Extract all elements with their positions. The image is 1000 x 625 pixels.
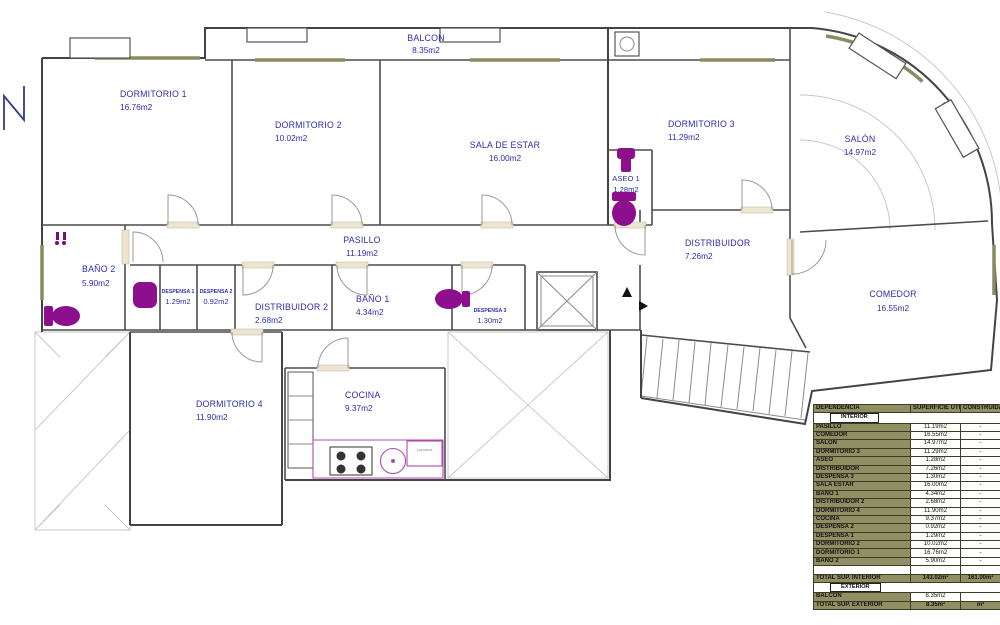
surface-table: DEPENDENCIA SUPERFICIE ÚTIL CONSTRUIDA I… [813,404,1000,610]
table-row: DISTRIBUIDOR 22.68m2- [814,499,1000,507]
table-cell-construida: - [961,440,1000,448]
label-distribuidor2: DISTRIBUIDOR 2 [255,302,328,312]
table-cell-construida: - [961,541,1000,549]
section-exterior-label: EXTERIOR [830,583,881,592]
svg-text:1.28m2: 1.28m2 [613,185,638,194]
table-row: DESPENSA 20.92m2- [814,524,1000,532]
bano1-toilet [435,289,463,309]
svg-text:14.97m2: 14.97m2 [844,147,877,157]
faucet-mark [56,232,59,240]
washing-machine [407,441,442,466]
table-cell-util: 10.02m2 [911,541,961,549]
label-dormitorio4: DORMITORIO 4 [196,399,263,409]
svg-text:2.68m2: 2.68m2 [255,315,283,325]
table-row: BAÑO 14.34m2- [814,490,1000,498]
exterior-rows: BALCON8.35m2 [814,593,1000,601]
table-cell-util: 2.68m2 [911,499,961,507]
bano2-basin [133,282,157,308]
table-row: BALCON8.35m2 [814,593,1000,601]
table-row: DISTRIBUIDOR7.26m2- [814,465,1000,473]
table-row: BAÑO 25.90m2- [814,557,1000,565]
table-row: DORMITORIO 210.02m2- [814,541,1000,549]
svg-text:11.29m2: 11.29m2 [668,132,700,142]
svg-text:0.92m2: 0.92m2 [203,297,228,306]
staircase [641,335,810,420]
elevator-shaft [537,272,597,330]
table-row: COMEDOR16.55m2- [814,431,1000,439]
table-cell-util: 1.30m2 [911,473,961,481]
table-cell-util: 11.90m2 [911,507,961,515]
stove [330,447,372,475]
label-dormitorio2: DORMITORIO 2 [275,120,342,130]
table-row: PASILLO11.19m2- [814,423,1000,431]
svg-text:1.30m2: 1.30m2 [477,316,502,325]
table-cell-util: 16.55m2 [911,431,961,439]
svg-text:7.26m2: 7.26m2 [685,251,713,261]
svg-text:16.55m2: 16.55m2 [877,303,910,313]
table-cell-name: DORMITORIO 2 [814,541,911,549]
arrow-right-icon [639,301,648,311]
table-cell-util: 9.37m2 [911,515,961,523]
table-cell-name: COCINA [814,515,911,523]
shower-unit [615,32,639,56]
table-cell-name: DORMITORIO 3 [814,448,911,456]
label-sala-de-estar: SALA DE ESTAR [470,140,540,150]
header-dependencia: DEPENDENCIA [814,405,911,413]
table-cell-name: COMEDOR [814,431,911,439]
north-mark [4,86,24,130]
label-comedor: COMEDOR [869,289,916,299]
table-cell-construida: - [961,431,1000,439]
table-cell-name: DESPENSA 1 [814,532,911,540]
table-cell-name: PASILLO [814,423,911,431]
table-row: DESPENSA 11.29m2- [814,532,1000,540]
table-cell-name [814,566,911,574]
table-cell-construida: - [961,524,1000,532]
interior-rows: PASILLO11.19m2-COMEDOR16.55m2-SALÓN14.97… [814,423,1000,574]
label-dormitorio1: DORMITORIO 1 [120,89,187,99]
table-row: SALÓN14.97m2- [814,440,1000,448]
table-cell-util: 4.34m2 [911,490,961,498]
svg-text:10.02m2: 10.02m2 [275,133,308,143]
section-exterior: EXTERIOR [814,583,1000,593]
table-cell-name: DISTRIBUIDOR 2 [814,499,911,507]
table-cell-util: 11.19m2 [911,423,961,431]
header-construida: CONSTRUIDA [961,405,1000,413]
table-cell-construida: - [961,515,1000,523]
total-interior-row: TOTAL SUP. INTERIOR 143.02m² 161.00m² [814,574,1000,582]
table-header-row: DEPENDENCIA SUPERFICIE ÚTIL CONSTRUIDA [814,405,1000,413]
table-cell-name: BAÑO 1 [814,490,911,498]
header-superficie: SUPERFICIE ÚTIL [911,405,961,413]
floorplan-page: { "plan": { "rooms": { "balcon": {"name"… [0,0,1000,625]
table-cell-construida: - [961,557,1000,565]
bano2-toilet [44,306,53,326]
table-cell-construida: - [961,490,1000,498]
table-cell-util: 1.28m2 [911,457,961,465]
table-row: DORMITORIO 116.76m2- [814,549,1000,557]
table-cell-name: SALA ESTAR [814,482,911,490]
table-row: DESPENSA 31.30m2- [814,473,1000,481]
svg-text:11.90m2: 11.90m2 [196,412,228,422]
table-cell-name: BALCON [814,593,911,601]
table-row: ASEO1.28m2- [814,457,1000,465]
table-row: SALA ESTAR16.00m2- [814,482,1000,490]
table-cell-util: 7.26m2 [911,465,961,473]
table-cell-util: 8.35m2 [911,593,961,601]
table-cell-name: DORMITORIO 1 [814,549,911,557]
table-cell-construida: - [961,473,1000,481]
label-pasillo: PASILLO [343,235,380,245]
table-cell-construida: - [961,532,1000,540]
svg-text:8.35m2: 8.35m2 [412,45,440,55]
aseo-sink [617,148,635,159]
washing-machine-label: Lavadora [417,448,434,452]
svg-text:9.37m2: 9.37m2 [345,403,373,413]
stair-direction-arrows [622,287,648,311]
svg-text:4.34m2: 4.34m2 [356,307,384,317]
svg-text:1.29m2: 1.29m2 [165,297,190,306]
table-cell-util: 5.90m2 [911,557,961,565]
table-cell-construida [961,593,1000,601]
section-interior-label: INTERIOR [830,413,879,422]
svg-text:16.76m2: 16.76m2 [120,102,153,112]
table-cell-construida: - [961,423,1000,431]
table-row: COCINA9.37m2- [814,515,1000,523]
table-cell-util: 1.29m2 [911,532,961,540]
label-aseo1: ASEO 1 [612,174,639,183]
table-row [814,566,1000,574]
table-cell-construida: - [961,448,1000,456]
table-cell-util [911,566,961,574]
table-cell-name: DORMITORIO 4 [814,507,911,515]
table-cell-util: 16.00m2 [911,482,961,490]
window-sills [42,36,994,300]
total-exterior-row: TOTAL SUP. EXTERIOR 8.35m² m² [814,601,1000,609]
table-row: DORMITORIO 311.29m2- [814,448,1000,456]
label-distribuidor: DISTRIBUIDOR [685,238,750,248]
table-cell-name: DISTRIBUIDOR [814,465,911,473]
table-cell-construida: - [961,499,1000,507]
label-despensa1: DESPENSA 1 [162,289,195,295]
label-cocina: COCINA [345,390,380,400]
label-balcon: BALCON [407,33,444,43]
table-cell-name: DESPENSA 2 [814,524,911,532]
table-cell-util: 11.29m2 [911,448,961,456]
svg-text:16.00m2: 16.00m2 [489,153,522,163]
table-cell-name: ASEO [814,457,911,465]
faucet-mark [63,232,66,240]
table-cell-construida: - [961,549,1000,557]
table-cell-construida: - [961,457,1000,465]
label-dormitorio3: DORMITORIO 3 [668,119,735,129]
table-cell-name: BAÑO 2 [814,557,911,565]
label-bano1: BAÑO 1 [356,294,389,304]
table-cell-construida: - [961,507,1000,515]
table-cell-util: 16.76m2 [911,549,961,557]
table-cell-name: DESPENSA 3 [814,473,911,481]
arrow-up-icon [622,287,632,297]
label-salon: SALÓN [845,134,876,144]
table-cell-util: 14.97m2 [911,440,961,448]
table-cell-construida: - [961,465,1000,473]
facade-elements [70,28,979,157]
kitchen-fittings: Lavadora [288,372,443,478]
table-row: DORMITORIO 411.90m2- [814,507,1000,515]
label-bano2: BAÑO 2 [82,264,115,274]
table-cell-name: SALÓN [814,440,911,448]
svg-text:11.19m2: 11.19m2 [346,248,378,258]
section-interior: INTERIOR [814,413,1000,423]
table-cell-construida [961,566,1000,574]
table-cell-util: 0.92m2 [911,524,961,532]
label-despensa2: DESPENSA 2 [200,289,233,295]
label-despensa3: DESPENSA 3 [474,308,507,314]
table-cell-construida: - [961,482,1000,490]
svg-text:5.90m2: 5.90m2 [82,278,110,288]
